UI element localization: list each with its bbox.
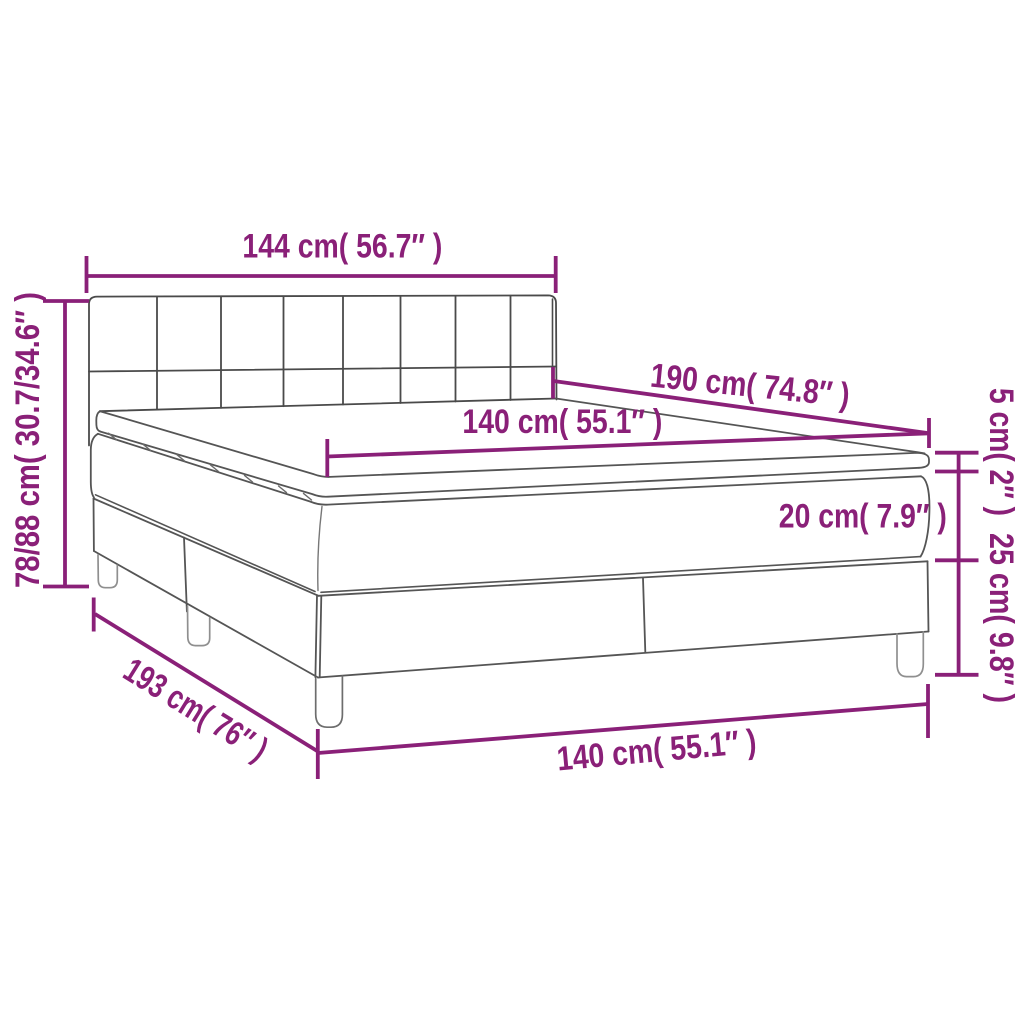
svg-text:20 cm( 7.9″ ): 20 cm( 7.9″ ) (779, 498, 947, 536)
svg-text:140 cm( 55.1″ ): 140 cm( 55.1″ ) (462, 403, 662, 441)
svg-text:25 cm( 9.8″ ): 25 cm( 9.8″ ) (982, 533, 1020, 703)
svg-text:144 cm( 56.7″ ): 144 cm( 56.7″ ) (242, 228, 442, 266)
svg-text:78/88 cm( 30.7/34.6″ ): 78/88 cm( 30.7/34.6″ ) (9, 292, 47, 588)
svg-text:5 cm( 2″ ): 5 cm( 2″ ) (982, 388, 1020, 516)
